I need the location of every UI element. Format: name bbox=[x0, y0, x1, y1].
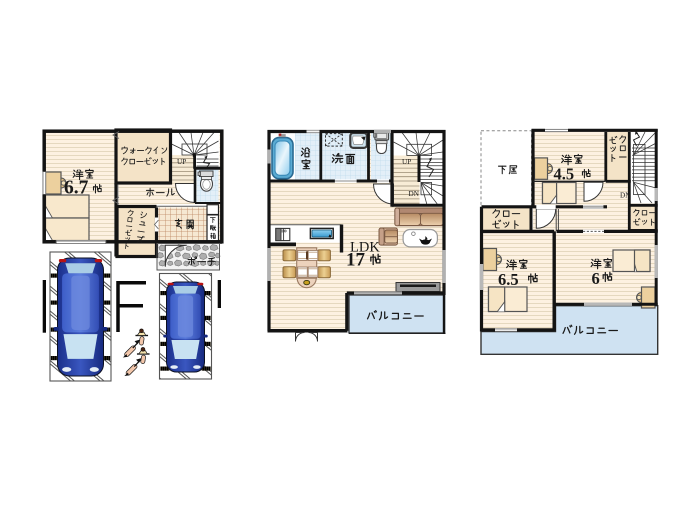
svg-text:17: 17 bbox=[346, 250, 366, 271]
svg-text:4.5: 4.5 bbox=[554, 165, 575, 184]
svg-text:6.5: 6.5 bbox=[498, 270, 519, 289]
svg-text:6: 6 bbox=[592, 269, 600, 288]
svg-text:DN: DN bbox=[620, 192, 631, 200]
svg-text:DN: DN bbox=[409, 190, 420, 198]
svg-text:UP: UP bbox=[177, 158, 186, 166]
svg-text:UP: UP bbox=[402, 158, 411, 166]
svg-text:6.7: 6.7 bbox=[64, 178, 89, 199]
